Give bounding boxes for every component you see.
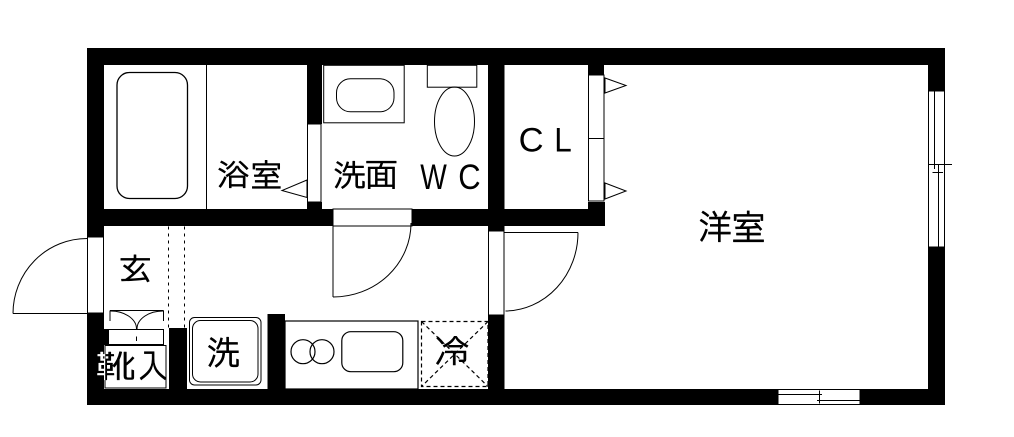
- svg-text:C: C: [458, 158, 480, 197]
- svg-text:C: C: [519, 122, 544, 160]
- svg-text:W: W: [420, 157, 447, 197]
- svg-text:L: L: [554, 121, 572, 160]
